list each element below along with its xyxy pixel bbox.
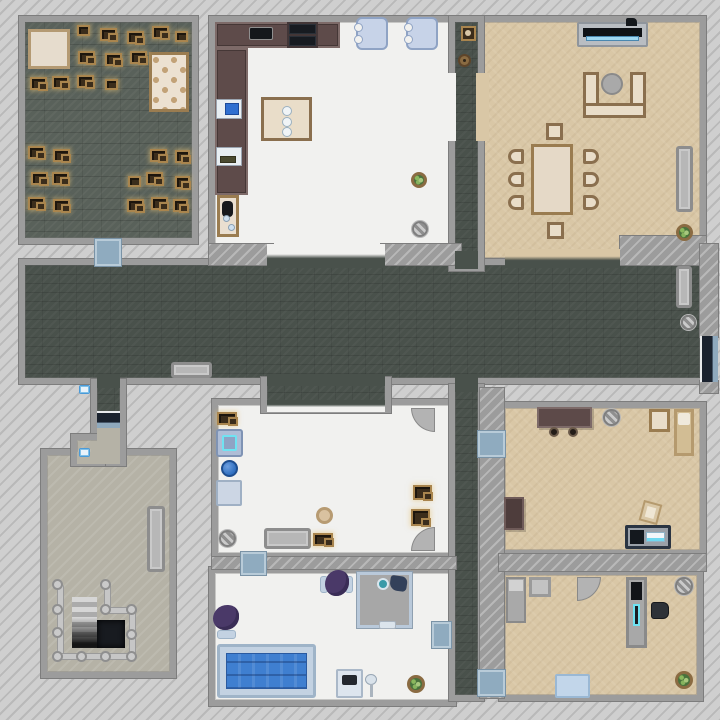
single-bed[interactable]: [506, 577, 526, 623]
loot-crate-pair[interactable]: [175, 176, 190, 189]
floor-drain[interactable]: [675, 577, 693, 595]
desk[interactable]: [537, 407, 592, 428]
loot-crate[interactable]: [128, 176, 141, 187]
loot-crate-pair[interactable]: [150, 149, 167, 162]
loot-crate-pair[interactable]: [53, 149, 70, 162]
door-mat[interactable]: [95, 239, 121, 266]
object-part: [282, 117, 292, 127]
loot-crate-pair[interactable]: [130, 51, 147, 64]
object-part: [86, 56, 96, 65]
object-part: [135, 36, 145, 45]
wall-shelf[interactable]: [216, 147, 242, 166]
floor-drain[interactable]: [219, 530, 236, 547]
object-part: [463, 59, 466, 62]
object-part: [113, 58, 123, 67]
object-part: [465, 30, 471, 36]
object-part: [509, 580, 523, 591]
object-part: [586, 36, 639, 41]
door-mat[interactable]: [432, 622, 451, 648]
entry-door[interactable]: [97, 411, 120, 428]
desk-stool[interactable]: [549, 427, 559, 437]
object-part: [108, 33, 118, 42]
railing-post: [100, 651, 111, 662]
object-part: [645, 506, 657, 519]
object-part: [404, 35, 413, 44]
object-part: [631, 582, 642, 600]
object-part: [354, 35, 363, 44]
wall-bench[interactable]: [676, 146, 693, 212]
island-table[interactable]: [261, 97, 312, 141]
stairwell-opening[interactable]: [97, 620, 125, 648]
floor-drain[interactable]: [681, 315, 696, 330]
object-part: [223, 215, 230, 222]
railing-post: [52, 627, 63, 638]
object-part: [389, 575, 408, 592]
object-part: [423, 492, 433, 501]
object-part: [61, 154, 71, 163]
loot-crate-pair[interactable]: [53, 199, 70, 212]
light-switch[interactable]: [79, 448, 90, 457]
object-part: [135, 204, 145, 213]
dining-chair[interactable]: [508, 195, 524, 210]
object-part: [61, 204, 71, 213]
object-part: [39, 177, 49, 186]
object-part: [60, 81, 70, 90]
object-part: [377, 578, 389, 590]
object-part: [138, 56, 148, 65]
loot-crate-pair[interactable]: [52, 76, 69, 89]
map-canvas[interactable]: [0, 0, 720, 720]
object-part: [583, 103, 646, 118]
object-part: [217, 630, 236, 639]
potted-plant[interactable]: [411, 172, 427, 188]
object-part: [228, 224, 235, 231]
railing-post: [100, 604, 111, 615]
living-hall-opening: [505, 249, 620, 268]
door-rug[interactable]: [555, 674, 590, 698]
stair-railing: [57, 653, 136, 660]
object-part: [226, 653, 307, 689]
desk-stool[interactable]: [568, 427, 578, 437]
loot-crate-pair[interactable]: [217, 412, 237, 425]
dining-chair[interactable]: [583, 149, 599, 164]
loot-crate-pair[interactable]: [28, 146, 45, 159]
hall-bench[interactable]: [676, 266, 692, 308]
object-part: [370, 684, 373, 697]
railing-post: [100, 579, 111, 590]
object-part: [159, 202, 169, 211]
wall-right-top: [700, 244, 718, 337]
dining-stool[interactable]: [547, 222, 564, 239]
door-mat[interactable]: [478, 670, 505, 696]
object-part: [154, 177, 164, 186]
round-ottoman[interactable]: [601, 73, 623, 95]
wall-living-nook: [620, 236, 706, 265]
loot-crate-pair[interactable]: [413, 485, 432, 500]
object-part: [213, 605, 239, 630]
object-part: [181, 181, 191, 190]
alcove-room-join: [267, 400, 385, 412]
single-bed[interactable]: [674, 409, 694, 456]
bench[interactable]: [264, 528, 311, 549]
wall-bedrooms: [499, 554, 706, 571]
object-part: [421, 518, 431, 527]
vertcorr-hall-join: [455, 374, 478, 392]
loot-crate-pair[interactable]: [127, 31, 144, 44]
object-part: [630, 530, 644, 544]
countertop-sink[interactable]: [249, 27, 273, 40]
tv-stand[interactable]: [577, 22, 648, 47]
hallway: [19, 259, 706, 384]
object-part: [282, 127, 292, 137]
potted-plant[interactable]: [676, 224, 693, 241]
floor-drain[interactable]: [412, 221, 428, 237]
side-table-kitchen[interactable]: [217, 195, 239, 237]
corridor-kitchen-gap: [442, 73, 456, 141]
potted-plant[interactable]: [675, 671, 693, 689]
loot-crate-pair[interactable]: [78, 51, 95, 64]
round-stool[interactable]: [316, 507, 333, 524]
desk-chair[interactable]: [651, 602, 669, 619]
object-part: [404, 23, 413, 32]
object-part: [179, 204, 189, 213]
wall-right-bottom: [700, 381, 718, 393]
tv-console[interactable]: [625, 525, 671, 549]
railing-post: [76, 651, 87, 662]
loot-crate[interactable]: [77, 25, 90, 36]
railing-post: [126, 629, 137, 640]
loot-crate[interactable]: [175, 31, 188, 42]
side-table[interactable]: [529, 577, 551, 597]
loot-crate-pair[interactable]: [313, 533, 333, 546]
kitchen-hall-opening: [267, 244, 385, 268]
wall-sink[interactable]: [216, 99, 242, 119]
bathtub-pool[interactable]: [217, 644, 316, 698]
dining-chair[interactable]: [583, 172, 599, 187]
object-part: [289, 24, 316, 34]
loot-crate-pair[interactable]: [152, 26, 169, 39]
object-part: [646, 532, 665, 542]
loot-crate-pair[interactable]: [77, 75, 94, 88]
floor-lamp[interactable]: [364, 674, 379, 698]
light-switch[interactable]: [79, 385, 90, 394]
loot-crate-pair[interactable]: [30, 77, 47, 90]
object-part: [160, 31, 170, 40]
object-part: [225, 103, 239, 115]
object-part: [222, 435, 237, 451]
loot-crate-pair[interactable]: [100, 28, 117, 41]
object-part: [626, 18, 637, 26]
armchair-blue[interactable]: [406, 17, 438, 50]
storage-box[interactable]: [216, 480, 242, 506]
nightstand[interactable]: [649, 409, 670, 432]
loot-crate-pair[interactable]: [127, 199, 144, 212]
railing-post: [52, 579, 63, 590]
loot-crate-pair[interactable]: [173, 199, 188, 212]
object-part: [342, 675, 357, 685]
loot-crate-pair[interactable]: [175, 150, 190, 163]
kitchen-counter-top[interactable]: [215, 22, 340, 48]
wall-kitchen-hall-right: [381, 244, 461, 265]
loot-crate-pair[interactable]: [411, 509, 430, 526]
dresser[interactable]: [504, 497, 524, 530]
object-part: [379, 621, 396, 629]
floor-rug[interactable]: [28, 29, 70, 69]
kitchen-counter-left[interactable]: [215, 48, 248, 195]
object-part: [36, 202, 46, 211]
entry-door[interactable]: [700, 336, 718, 382]
corridor-living-gap: [476, 73, 489, 141]
shower-stall[interactable]: [357, 572, 412, 628]
entry-hall-join: [97, 374, 120, 388]
railing-post: [126, 651, 137, 662]
loot-crate[interactable]: [105, 79, 118, 90]
door-mat[interactable]: [241, 552, 266, 575]
staircase-down[interactable]: [72, 597, 97, 648]
object-part: [678, 413, 690, 425]
sink-vanity[interactable]: [336, 669, 363, 698]
loot-crate-pair[interactable]: [146, 172, 163, 185]
object-part: [220, 156, 236, 163]
upholstered-chair[interactable]: [215, 605, 241, 639]
wall-bench[interactable]: [147, 506, 165, 572]
potted-plant[interactable]: [407, 675, 425, 693]
railing-post: [52, 604, 63, 615]
object-part: [633, 604, 640, 626]
object-part: [181, 155, 191, 164]
object-part: [158, 154, 168, 163]
loot-crate-pair[interactable]: [52, 172, 69, 185]
object-part: [60, 177, 70, 186]
clay-pot[interactable]: [458, 54, 471, 67]
supply-crate[interactable]: [461, 26, 476, 41]
hall-bench[interactable]: [171, 362, 212, 378]
washing-machine[interactable]: [216, 429, 243, 457]
railing-post: [52, 651, 63, 662]
object-part: [354, 23, 363, 32]
railing-post: [126, 604, 137, 615]
wall-kitchen-hall-left: [209, 244, 273, 265]
dining-chair[interactable]: [508, 149, 524, 164]
loot-crate-pair[interactable]: [28, 197, 45, 210]
dining-chair[interactable]: [583, 195, 599, 210]
door-mat[interactable]: [478, 431, 505, 457]
object-part: [38, 82, 48, 91]
dining-stool[interactable]: [546, 123, 563, 140]
stair-railing: [57, 584, 64, 658]
upholstered-chair[interactable]: [320, 572, 353, 598]
ball[interactable]: [221, 460, 238, 477]
object-part: [289, 36, 316, 46]
object-part: [282, 106, 292, 116]
armchair-blue[interactable]: [356, 17, 388, 50]
object-part: [85, 80, 95, 89]
alcove-hall-join: [267, 374, 385, 386]
living-room: [476, 16, 706, 264]
corridor-hall-join: [455, 251, 478, 269]
floor-drain[interactable]: [603, 409, 620, 426]
bookshelf[interactable]: [626, 577, 647, 648]
dining-table[interactable]: [531, 144, 573, 215]
stove[interactable]: [287, 22, 318, 48]
loot-crate-pair[interactable]: [31, 172, 48, 185]
dining-chair[interactable]: [508, 172, 524, 187]
loot-crate-pair[interactable]: [105, 53, 122, 66]
object-part: [324, 538, 334, 547]
object-part: [228, 417, 238, 426]
tufted-board[interactable]: [149, 52, 189, 112]
loot-crate-pair[interactable]: [151, 197, 168, 210]
object-part: [36, 151, 46, 160]
